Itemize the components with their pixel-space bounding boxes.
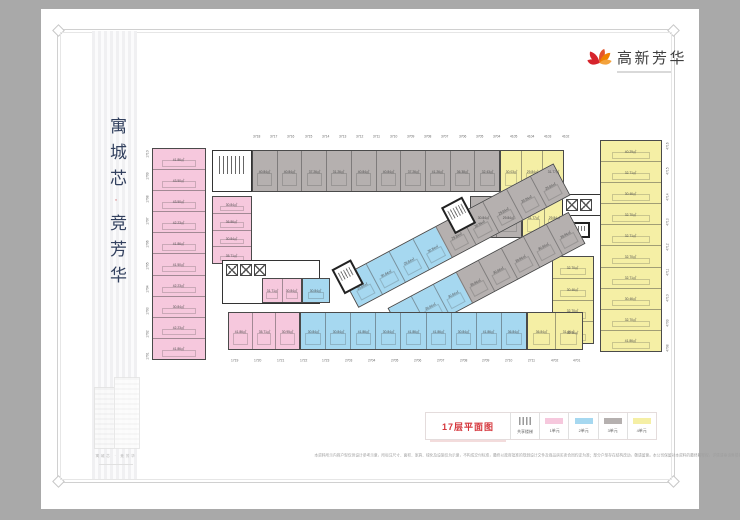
shared-stairs-icon	[519, 417, 531, 425]
building-tower-right	[114, 377, 140, 449]
border-corner-ornament	[52, 24, 65, 37]
unit-cell: 41.86㎡	[153, 232, 205, 253]
room-number: 4105	[510, 135, 517, 138]
unit1-color-swatch	[545, 418, 563, 424]
room-number: 1721	[277, 359, 284, 362]
unit-cell: 30.84㎡	[153, 296, 205, 317]
unit-cell: 42.23㎡	[153, 211, 205, 232]
unit4-right-wing: 40.29㎡32.71㎡30.46㎡32.70㎡32.71㎡32.70㎡32.7…	[600, 140, 662, 352]
unit-cell: 30.84㎡	[451, 313, 476, 349]
room-number: 4716	[666, 144, 669, 150]
room-number: 3713	[339, 135, 346, 138]
unit-cell: 41.86㎡	[229, 313, 252, 349]
unit-cell: 32.71㎡	[601, 267, 661, 288]
room-number: 1705	[146, 264, 149, 270]
border-corner-ornament	[667, 475, 680, 488]
room-number: 2709	[482, 359, 489, 362]
legend-item-unit4: 4单元	[627, 413, 656, 439]
room-number: 2710	[505, 359, 512, 362]
unit-cell: 42.23㎡	[153, 275, 205, 296]
unit-cell: 32.70㎡	[553, 257, 593, 278]
disclaimer-text: 本资料所示内容户型仅供设计参考示意，所标注尺寸、面积、家具、绿化及设施仅为示意，…	[314, 452, 599, 458]
unit-cell: 40.29㎡	[601, 141, 661, 161]
room-number: 3712	[356, 135, 363, 138]
unit-cell: 43.50㎡	[153, 190, 205, 211]
unit2-inner-row: 30.84㎡	[302, 278, 330, 303]
room-number: 4710	[666, 296, 669, 302]
unit-cell: 30.84㎡	[282, 279, 302, 302]
unit-cell: 41.50㎡	[153, 253, 205, 274]
room-number: 4701	[573, 359, 580, 362]
border-corner-ornament	[52, 475, 65, 488]
room-number: 4712	[666, 245, 669, 251]
flower-icon	[586, 47, 613, 75]
unit3-color-swatch	[604, 418, 622, 424]
floor-plan: 3718371737163715371437133712371137103709…	[150, 128, 668, 376]
room-number: 3710	[390, 135, 397, 138]
building-caption-rule	[99, 464, 133, 465]
page-title-part2: 竞芳华	[107, 214, 126, 292]
unit-cell: 32.70㎡	[601, 245, 661, 266]
room-number: 1710	[146, 152, 149, 158]
unit-cell: 31.26㎡	[326, 151, 351, 191]
room-number: 4702	[551, 359, 558, 362]
shared-stairs-core-top	[212, 150, 252, 192]
page-background: 寓城芯·竞芳华 寓城芯 · 竞芳华 高新芳华 37183717371637153	[0, 0, 740, 520]
unit-cell: 42.23㎡	[153, 317, 205, 338]
unit3-top-wing: 40.84㎡40.84㎡37.26㎡31.26㎡40.84㎡40.84㎡37.2…	[252, 150, 500, 192]
unit-cell: 30.84㎡	[213, 230, 251, 247]
room-number: 4102	[562, 135, 569, 138]
elevator-shaft-icon	[566, 199, 578, 211]
room-number: 1708	[146, 197, 149, 203]
unit-cell: 30.84㎡	[303, 279, 329, 302]
room-number: 1701	[146, 354, 149, 360]
unit1-inner-row: 31.71㎡30.84㎡	[262, 278, 302, 303]
room-number: 2706	[414, 359, 421, 362]
unit-cell: 41.86㎡	[153, 149, 205, 169]
unit-cell: 30.95㎡	[275, 313, 299, 349]
unit-cell: 32.71㎡	[601, 161, 661, 182]
room-number: 4104	[527, 135, 534, 138]
unit-cell: 41.86㎡	[426, 313, 451, 349]
unit-cell: 40.84㎡	[253, 151, 277, 191]
unit1-left-wing: 41.86㎡43.50㎡43.50㎡42.23㎡41.86㎡41.50㎡42.2…	[152, 148, 206, 360]
brand-tagline-rule	[617, 71, 671, 73]
room-numbers-right: 471647154714471347124711471047094708	[663, 144, 673, 352]
room-number: 4711	[666, 271, 669, 277]
room-number: 2708	[460, 359, 467, 362]
unit-cell: 35.71㎡	[252, 313, 276, 349]
room-number: 3706	[459, 135, 466, 138]
unit1-inner-column: 30.84㎡36.86㎡30.84㎡35.71㎡	[212, 196, 252, 264]
unit-cell: 30.46㎡	[601, 288, 661, 309]
room-number: 4715	[666, 170, 669, 176]
room-number: 4714	[666, 195, 669, 201]
room-number: 3711	[373, 135, 380, 138]
room-number: 1706	[146, 242, 149, 248]
legend-bar: 17层平面图 共享楼梯 1单元 2单元 3单元 4单元	[425, 412, 657, 440]
room-number: 4709	[666, 321, 669, 327]
unit-cell: 41.86㎡	[350, 313, 375, 349]
room-number: 3708	[424, 135, 431, 138]
elevator-shaft-icon	[240, 264, 252, 276]
page-title: 寓城芯·竞芳华	[99, 117, 129, 377]
unit-cell: 32.70㎡	[601, 309, 661, 330]
brand-name: 高新芳华	[617, 47, 687, 68]
unit-cell: 36.84㎡	[501, 313, 526, 349]
unit4-color-swatch	[633, 418, 651, 424]
unit2-bottom-wing: 30.84㎡30.84㎡41.86㎡30.84㎡41.86㎡41.86㎡30.8…	[300, 312, 527, 350]
room-number: 1723	[322, 359, 329, 362]
room-number: 1722	[300, 359, 307, 362]
unit-cell: 32.43㎡	[474, 151, 499, 191]
room-number: 3707	[441, 135, 448, 138]
room-number: 2705	[391, 359, 398, 362]
title-separator-dot: ·	[111, 195, 121, 214]
unit-cell: 36.38㎡	[450, 151, 475, 191]
room-number: 3709	[407, 135, 414, 138]
room-number: 4708	[666, 346, 669, 352]
unit-cell: 30.84㎡	[325, 313, 350, 349]
room-number: 1720	[254, 359, 261, 362]
unit-cell: 40.84㎡	[376, 151, 401, 191]
room-number: 2711	[528, 359, 535, 362]
unit-cell: 32.70㎡	[601, 203, 661, 224]
elevator-shaft-icon	[580, 199, 592, 211]
room-number: 4713	[666, 220, 669, 226]
unit-cell: 36.86㎡	[213, 213, 251, 230]
room-number: 3715	[305, 135, 312, 138]
room-numbers-top: 3718371737163715371437133712371137103709…	[250, 134, 572, 140]
brand-logo: 高新芳华	[586, 47, 687, 75]
unit-cell: 37.26㎡	[400, 151, 425, 191]
brochure-page: 寓城芯·竞芳华 寓城芯 · 竞芳华 高新芳华 37183717371637153	[41, 9, 699, 509]
room-number: 3718	[253, 135, 260, 138]
unit-cell: 41.86㎡	[153, 338, 205, 359]
unit-cell: 41.86㎡	[476, 313, 501, 349]
legend-item-unit2: 2单元	[568, 413, 597, 439]
unit-cell: 30.46㎡	[553, 278, 593, 300]
unit-cell: 30.84㎡	[375, 313, 400, 349]
unit-cell: 41.86㎡	[400, 313, 425, 349]
unit-cell: 30.84㎡	[213, 197, 251, 213]
room-number: 2703	[345, 359, 352, 362]
floor-plan-label: 17层平面图	[426, 413, 510, 439]
border-corner-ornament	[667, 24, 680, 37]
unit-cell: 41.26㎡	[425, 151, 450, 191]
room-number: 3704	[493, 135, 500, 138]
elevator-shaft-icon	[254, 264, 266, 276]
room-number: 1719	[231, 359, 238, 362]
unit-cell: 30.84㎡	[301, 313, 325, 349]
unit-cell: 31.71㎡	[263, 279, 282, 302]
unit-cell: 30.46㎡	[601, 182, 661, 203]
building-caption: 寓城芯 · 竞芳华	[89, 453, 143, 458]
unit-cell: 32.71㎡	[601, 224, 661, 245]
room-number: 2704	[368, 359, 375, 362]
room-number: 3714	[322, 135, 329, 138]
unit2-color-swatch	[575, 418, 593, 424]
room-numbers-bottom: 1719172017211722172327032704270527062707…	[228, 358, 584, 364]
unit-cell: 37.26㎡	[301, 151, 326, 191]
room-number: 4103	[544, 135, 551, 138]
room-number: 3717	[270, 135, 277, 138]
legend-item-unit1: 1单元	[539, 413, 568, 439]
unit-cell: 41.86㎡	[601, 330, 661, 351]
unit-cell: 43.50㎡	[153, 169, 205, 190]
room-number: 3716	[287, 135, 294, 138]
elevator-shaft-icon	[226, 264, 238, 276]
room-number: 3705	[476, 135, 483, 138]
unit1-bottom-strip: 41.86㎡35.71㎡30.95㎡	[228, 312, 300, 350]
room-number: 1707	[146, 220, 149, 226]
legend-item-unit3: 3单元	[598, 413, 627, 439]
unit-cell: 36.84㎡	[528, 313, 555, 349]
room-number: 1702	[146, 332, 149, 338]
room-number: 1709	[146, 175, 149, 181]
unit-cell: 40.84㎡	[277, 151, 302, 191]
room-number: 1703	[146, 309, 149, 315]
room-number: 2707	[437, 359, 444, 362]
building-illustration	[88, 377, 144, 449]
legend-item-shared-stairs: 共享楼梯	[510, 413, 539, 439]
room-number: 1704	[146, 287, 149, 293]
page-title-part1: 寓城芯	[107, 117, 126, 195]
unit-cell: 40.84㎡	[351, 151, 376, 191]
